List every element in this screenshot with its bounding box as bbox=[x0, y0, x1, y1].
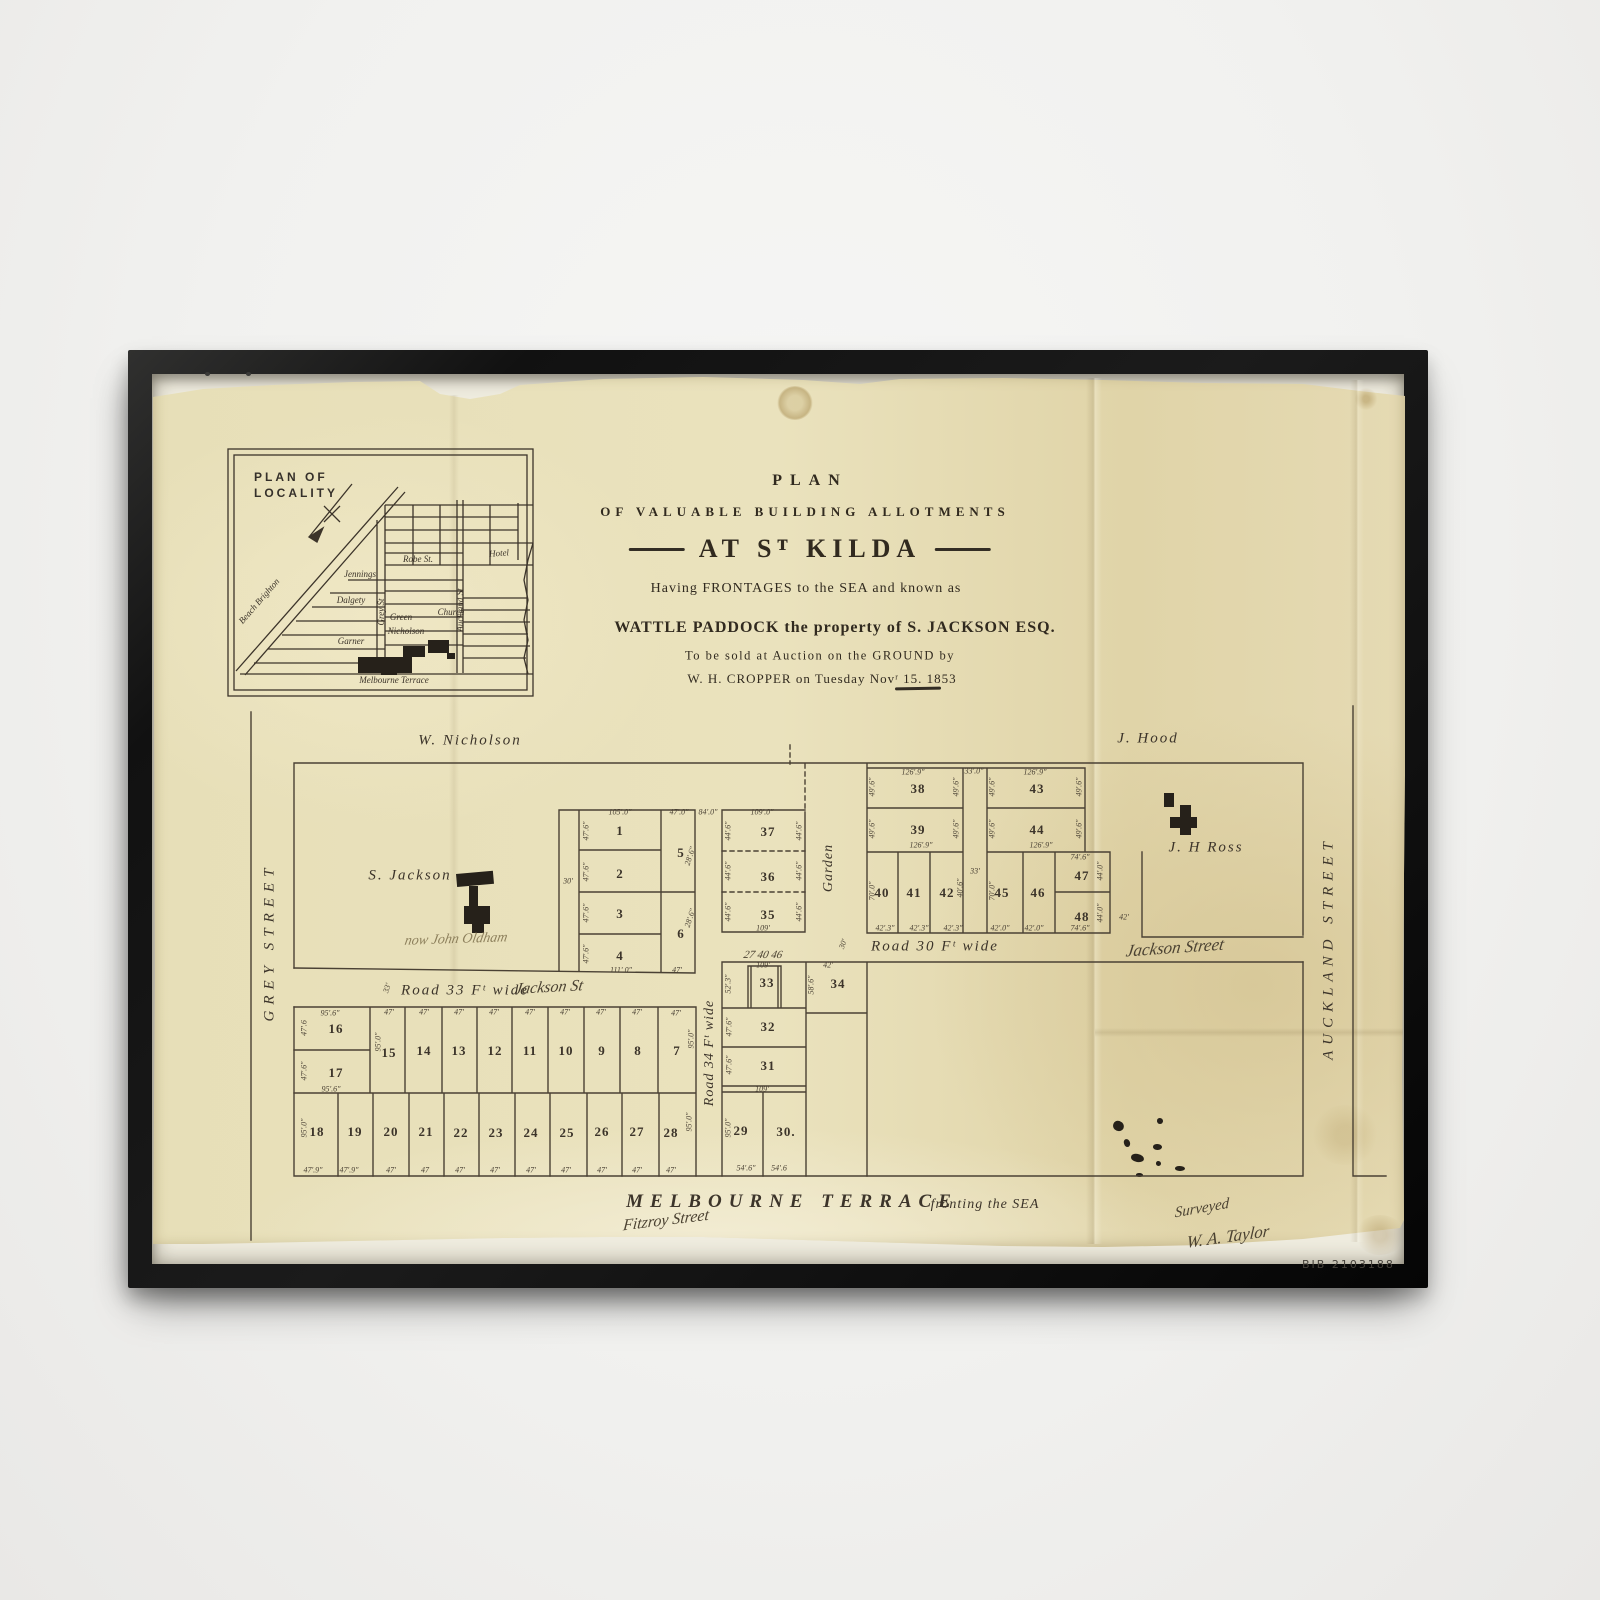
dim-label: 47'.6" bbox=[582, 862, 591, 881]
ink-blot bbox=[1156, 1161, 1161, 1166]
lot-number-40: 40 bbox=[875, 885, 890, 901]
ink-blot bbox=[1136, 1173, 1143, 1177]
lot-number-46: 46 bbox=[1031, 885, 1046, 901]
dim-label: 44'.6" bbox=[724, 821, 733, 840]
dim-label: 109' bbox=[756, 924, 770, 933]
lot-number-23: 23 bbox=[489, 1125, 504, 1141]
dim-label: 49'.6" bbox=[988, 777, 997, 796]
lot-number-30: 30. bbox=[776, 1124, 795, 1140]
lot-number-20: 20 bbox=[384, 1124, 399, 1140]
dim-label: 47'.6" bbox=[582, 944, 591, 963]
dim-label: 54'.6" bbox=[736, 1164, 755, 1173]
dim-label: 126'.9" bbox=[1029, 841, 1052, 850]
street-label-w-nicholson: W. Nicholson bbox=[418, 733, 521, 750]
lot-number-42: 42 bbox=[940, 885, 955, 901]
paper-pin-mark bbox=[205, 372, 210, 376]
title-line-at-st-kilda: AT Sᵀ KILDA bbox=[615, 534, 1005, 564]
lot-number-31: 31 bbox=[761, 1058, 776, 1074]
dim-label: 42' bbox=[1119, 913, 1129, 922]
street-label-auckland-street: AUCKLAND STREET bbox=[1321, 836, 1338, 1060]
dim-label: 126'.9" bbox=[909, 841, 932, 850]
inset-heading-line2: LOCALITY bbox=[254, 486, 338, 500]
ink-blot bbox=[1175, 1166, 1185, 1171]
dim-label: 70'.0" bbox=[868, 881, 877, 900]
title-dash-right bbox=[935, 548, 991, 551]
inset-street-label: Nicholson bbox=[388, 626, 425, 636]
lot-number-1: 1 bbox=[616, 823, 624, 839]
dim-label: 109' bbox=[755, 1085, 769, 1094]
dim-label: 58'.6" bbox=[807, 975, 816, 994]
title-line-plan: PLAN bbox=[772, 472, 848, 490]
dim-label: 111'.0" bbox=[610, 966, 632, 975]
lot-number-14: 14 bbox=[417, 1043, 432, 1059]
lot-number-3: 3 bbox=[616, 906, 624, 922]
dim-label: 47' bbox=[671, 1009, 681, 1018]
lot-number-37: 37 bbox=[761, 824, 776, 840]
dim-label: 84'.0" bbox=[698, 808, 717, 817]
lot-number-19: 19 bbox=[348, 1124, 363, 1140]
dim-label: 95'.0" bbox=[374, 1032, 383, 1051]
framed-map-photo: PLAN OF VALUABLE BUILDING ALLOTMENTS AT … bbox=[0, 0, 1600, 1600]
inset-heading-line1: PLAN OF bbox=[254, 470, 328, 484]
street-label-fronting-the-sea: fronting the SEA bbox=[931, 1197, 1040, 1213]
dim-label: 44'.0" bbox=[1096, 903, 1105, 922]
inset-street-label: Hotel bbox=[489, 547, 510, 558]
inset-street-label: Grey St bbox=[376, 599, 386, 626]
dim-label: 49'.6" bbox=[1075, 819, 1084, 838]
title-dash-left bbox=[629, 548, 685, 551]
lot-number-8: 8 bbox=[634, 1043, 642, 1059]
handwriting-note-0: Jackson St bbox=[514, 977, 585, 999]
dim-label: 47' bbox=[561, 1166, 571, 1175]
dim-label: 42'.3" bbox=[943, 924, 962, 933]
dim-label: 47' bbox=[384, 1008, 394, 1017]
lot-number-21: 21 bbox=[419, 1124, 434, 1140]
lot-number-24: 24 bbox=[524, 1125, 539, 1141]
lot-number-36: 36 bbox=[761, 869, 776, 885]
dim-label: 42'.3" bbox=[909, 924, 928, 933]
dim-label: 47'.6" bbox=[582, 903, 591, 922]
dim-label: 44'.6" bbox=[795, 861, 804, 880]
lot-number-2: 2 bbox=[616, 866, 624, 882]
lot-number-16: 16 bbox=[329, 1021, 344, 1037]
lot-number-44: 44 bbox=[1030, 822, 1045, 838]
lot-number-22: 22 bbox=[454, 1125, 469, 1141]
dim-label: 105'.0" bbox=[608, 808, 631, 817]
handwriting-note-6: 27 40 46 bbox=[742, 949, 783, 961]
street-label-j-hood: J. Hood bbox=[1117, 731, 1179, 748]
lot-number-34: 34 bbox=[831, 976, 846, 992]
dim-label: 95'.0" bbox=[724, 1118, 733, 1137]
title-line-subtitle: OF VALUABLE BUILDING ALLOTMENTS bbox=[600, 504, 1009, 520]
owner-label-j-h-ross: J. H Ross bbox=[1168, 840, 1243, 857]
dim-label: 47' bbox=[490, 1166, 500, 1175]
dim-label: 109' bbox=[756, 961, 770, 970]
dim-label: 49'.6" bbox=[952, 819, 961, 838]
dim-label: 95'.6" bbox=[321, 1085, 340, 1094]
dim-label: 33'.0" bbox=[964, 767, 983, 776]
lot-number-25: 25 bbox=[560, 1125, 575, 1141]
dim-label: 44'.6" bbox=[795, 902, 804, 921]
dim-label: 44'.6" bbox=[724, 861, 733, 880]
lot-number-4: 4 bbox=[616, 948, 624, 964]
lot-number-43: 43 bbox=[1030, 781, 1045, 797]
title-line-frontages: Having FRONTAGES to the SEA and known as bbox=[651, 581, 962, 597]
ink-blot bbox=[1153, 1144, 1162, 1150]
dim-label: 47' bbox=[525, 1008, 535, 1017]
dim-label: 126'.9" bbox=[901, 768, 924, 777]
dim-label: 47' bbox=[632, 1166, 642, 1175]
dim-label: 95'.0" bbox=[685, 1112, 694, 1131]
dim-label: 47'.6 bbox=[300, 1020, 309, 1036]
inset-street-label: Jennings bbox=[344, 569, 376, 579]
dim-label: 33' bbox=[970, 867, 980, 876]
lot-number-35: 35 bbox=[761, 907, 776, 923]
lot-number-13: 13 bbox=[452, 1043, 467, 1059]
dim-label: 47' bbox=[419, 1008, 429, 1017]
title-line-cropper: W. H. CROPPER on Tuesday Novʳ 15. 1853 bbox=[687, 671, 956, 687]
dim-label: 47'.6" bbox=[300, 1061, 309, 1080]
dim-label: 70'.0" bbox=[988, 881, 997, 900]
lot-number-27: 27 bbox=[630, 1124, 645, 1140]
dim-label: 47'.6" bbox=[725, 1017, 734, 1036]
title-line-auction: To be sold at Auction on the GROUND by bbox=[685, 649, 955, 664]
dim-label: 47' bbox=[666, 1166, 676, 1175]
street-label-grey-street: GREY STREET bbox=[262, 863, 279, 1022]
inset-street-label: Green bbox=[390, 612, 412, 622]
lot-number-45: 45 bbox=[995, 885, 1010, 901]
dim-label: 47'.6" bbox=[582, 821, 591, 840]
dim-label: 49'.6" bbox=[988, 819, 997, 838]
inset-street-label: Garner bbox=[338, 636, 365, 646]
lot-number-38: 38 bbox=[911, 781, 926, 797]
lot-number-11: 11 bbox=[523, 1043, 537, 1059]
dim-label: 42' bbox=[823, 961, 833, 970]
ink-blot bbox=[1157, 1118, 1163, 1124]
paper-pin-mark bbox=[246, 372, 251, 376]
lot-number-6: 6 bbox=[677, 926, 685, 942]
dim-label: 74'.6" bbox=[1070, 924, 1089, 933]
dim-label: 44'.0" bbox=[1096, 861, 1105, 880]
lot-number-28: 28 bbox=[664, 1125, 679, 1141]
lot-number-10: 10 bbox=[559, 1043, 574, 1059]
dim-label: 44'.6" bbox=[795, 821, 804, 840]
lot-number-18: 18 bbox=[310, 1124, 325, 1140]
lot-number-17: 17 bbox=[329, 1065, 344, 1081]
lot-number-7: 7 bbox=[673, 1043, 681, 1059]
dim-label: 40'.6" bbox=[956, 878, 965, 897]
lot-number-12: 12 bbox=[488, 1043, 503, 1059]
lot-number-15: 15 bbox=[382, 1045, 397, 1061]
dim-label: 95'.0" bbox=[687, 1029, 696, 1048]
dim-label: 42'.3" bbox=[875, 924, 894, 933]
dim-label: 47' bbox=[672, 966, 682, 975]
dim-label: 44'.6" bbox=[724, 902, 733, 921]
dim-label: 95'.6" bbox=[320, 1009, 339, 1018]
lot-number-39: 39 bbox=[911, 822, 926, 838]
dim-label: 47' bbox=[526, 1166, 536, 1175]
dim-label: 49'.6" bbox=[1075, 777, 1084, 796]
dim-label: 74'.6" bbox=[1070, 853, 1089, 862]
dim-label: 42'.0" bbox=[1024, 924, 1043, 933]
dim-label: 49'.6" bbox=[868, 777, 877, 796]
inset-street-label: Dalgety bbox=[337, 595, 366, 605]
street-label-road-34: Road 34 Fᵗ wide bbox=[702, 1000, 718, 1106]
lot-number-47: 47 bbox=[1075, 868, 1090, 884]
inset-street-label: Robe St. bbox=[403, 554, 433, 564]
dim-label: 47 bbox=[421, 1166, 429, 1175]
dim-label: 47' bbox=[455, 1166, 465, 1175]
inset-street-label: Melbourne Terrace bbox=[359, 675, 428, 685]
title-line-wattle-paddock: WATTLE PADDOCK the property of S. JACKSO… bbox=[614, 619, 1055, 637]
lot-number-9: 9 bbox=[598, 1043, 606, 1059]
dim-label: 47' bbox=[632, 1008, 642, 1017]
dim-label: 42'.0" bbox=[990, 924, 1009, 933]
inset-street-label: Auckland St bbox=[455, 588, 465, 631]
dim-label: 109'.0" bbox=[750, 808, 773, 817]
dim-label: 47'.0" bbox=[669, 808, 688, 817]
dim-label: 47' bbox=[597, 1166, 607, 1175]
lot-number-41: 41 bbox=[907, 885, 922, 901]
dim-label: 30' bbox=[563, 877, 573, 886]
dim-label: 47' bbox=[560, 1008, 570, 1017]
owner-label-s-jackson: S. Jackson bbox=[368, 868, 451, 885]
dim-label: 47' bbox=[596, 1008, 606, 1017]
dim-label: 47' bbox=[454, 1008, 464, 1017]
street-label-garden: Garden bbox=[821, 844, 837, 892]
street-label-road-30: Road 30 Fᵗ wide bbox=[871, 939, 999, 956]
lot-number-26: 26 bbox=[595, 1124, 610, 1140]
dim-label: 54'.6 bbox=[771, 1164, 787, 1173]
dim-label: 47'.9" bbox=[339, 1166, 358, 1175]
lot-number-29: 29 bbox=[734, 1123, 749, 1139]
dim-label: 47' bbox=[489, 1008, 499, 1017]
dim-label: 49'.6" bbox=[952, 777, 961, 796]
dim-label: 47'.6" bbox=[725, 1055, 734, 1074]
dim-label: 52'.3" bbox=[724, 974, 733, 993]
lot-number-33: 33 bbox=[760, 975, 775, 991]
street-label-road-33: Road 33 Fᵗ wide bbox=[401, 983, 529, 1000]
dim-label: 95'.0" bbox=[300, 1118, 309, 1137]
dim-label: 47' bbox=[386, 1166, 396, 1175]
catalogue-stamp: BIB 2103188 bbox=[1302, 1258, 1395, 1271]
dim-label: 49'.6" bbox=[868, 819, 877, 838]
dim-label: 126'.9" bbox=[1023, 768, 1046, 777]
lot-number-32: 32 bbox=[761, 1019, 776, 1035]
dim-label: 47'.9" bbox=[303, 1166, 322, 1175]
